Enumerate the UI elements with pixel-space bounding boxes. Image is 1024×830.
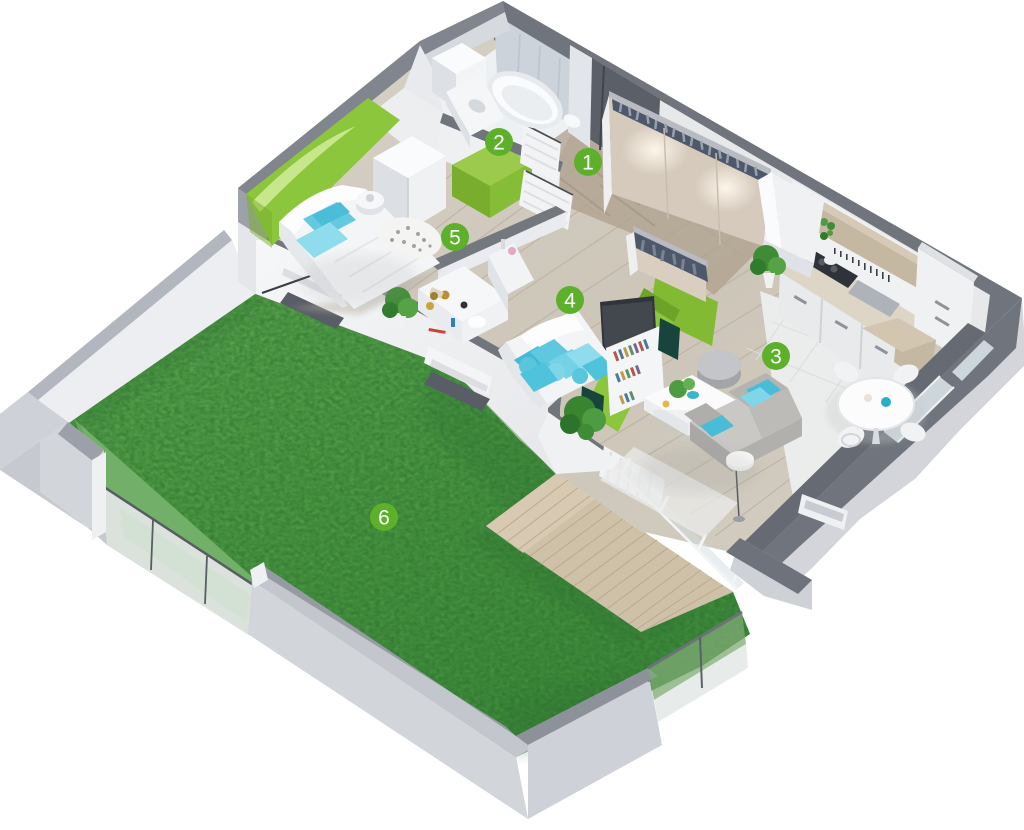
svg-text:5: 5: [449, 227, 461, 250]
svg-text:1: 1: [582, 152, 594, 175]
svg-text:2: 2: [493, 132, 505, 155]
svg-text:6: 6: [378, 507, 390, 530]
svg-text:4: 4: [564, 290, 576, 313]
svg-text:3: 3: [770, 346, 782, 369]
